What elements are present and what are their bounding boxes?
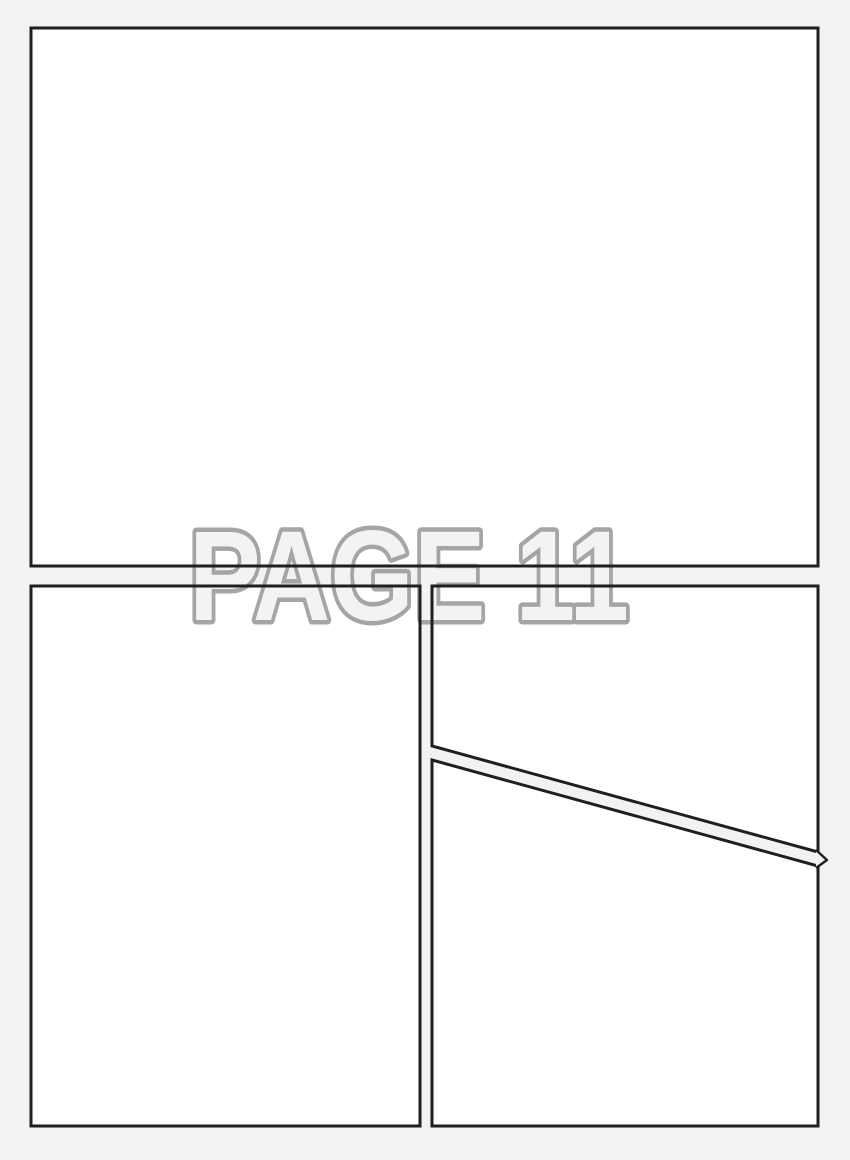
page-canvas: PAGE 11	[0, 0, 850, 1160]
comic-page-template: PAGE 11	[0, 0, 850, 1160]
panel-bottom-left-fill	[31, 586, 420, 1126]
page-title: PAGE 11	[189, 505, 629, 648]
panel-top-fill	[31, 28, 818, 566]
